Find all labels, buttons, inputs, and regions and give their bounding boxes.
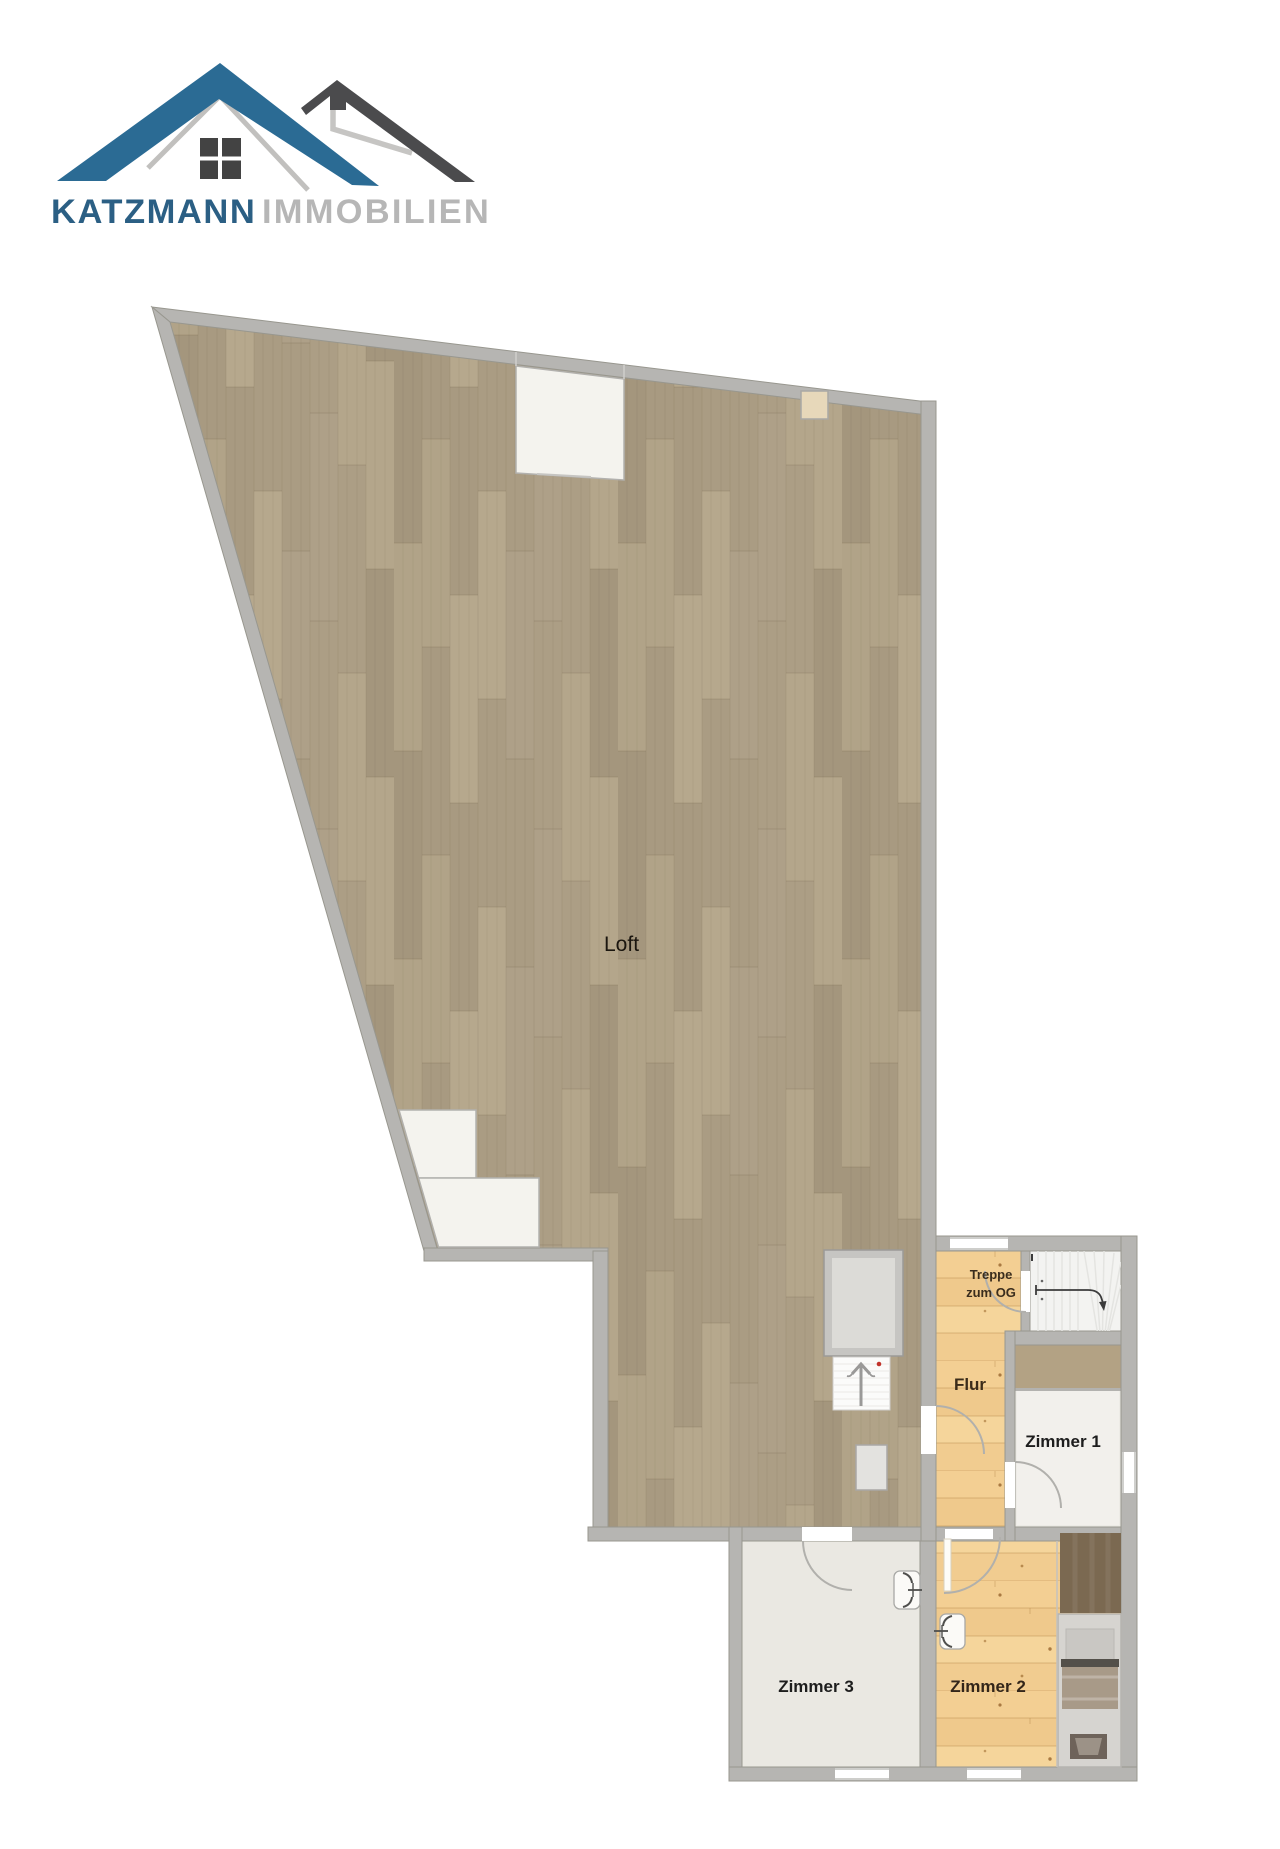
svg-text:IMMOBILIEN: IMMOBILIEN: [262, 193, 491, 231]
svg-text:Loft: Loft: [604, 933, 639, 956]
svg-text:KATZMANN: KATZMANN: [51, 193, 256, 231]
svg-text:Zimmer 3: Zimmer 3: [778, 1677, 854, 1696]
svg-text:Treppe: Treppe: [970, 1267, 1013, 1282]
svg-text:Zimmer 2: Zimmer 2: [950, 1677, 1026, 1696]
svg-text:Flur: Flur: [954, 1375, 986, 1394]
svg-text:Zimmer 1: Zimmer 1: [1025, 1432, 1101, 1451]
svg-text:zum OG: zum OG: [966, 1285, 1016, 1300]
